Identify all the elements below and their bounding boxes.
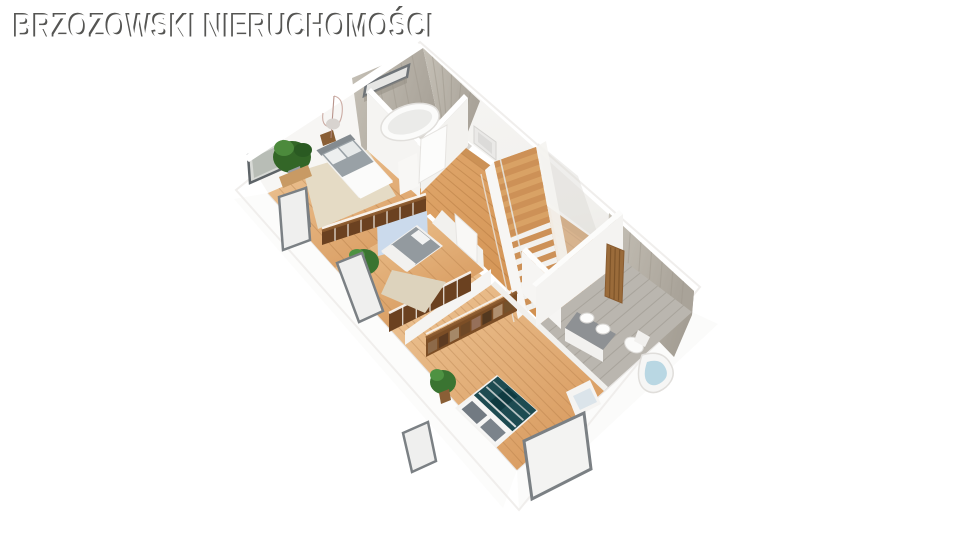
svg-text:BRZOZOWSKI NIERUCHOMOŚCI: BRZOZOWSKI NIERUCHOMOŚCI [14,8,435,46]
